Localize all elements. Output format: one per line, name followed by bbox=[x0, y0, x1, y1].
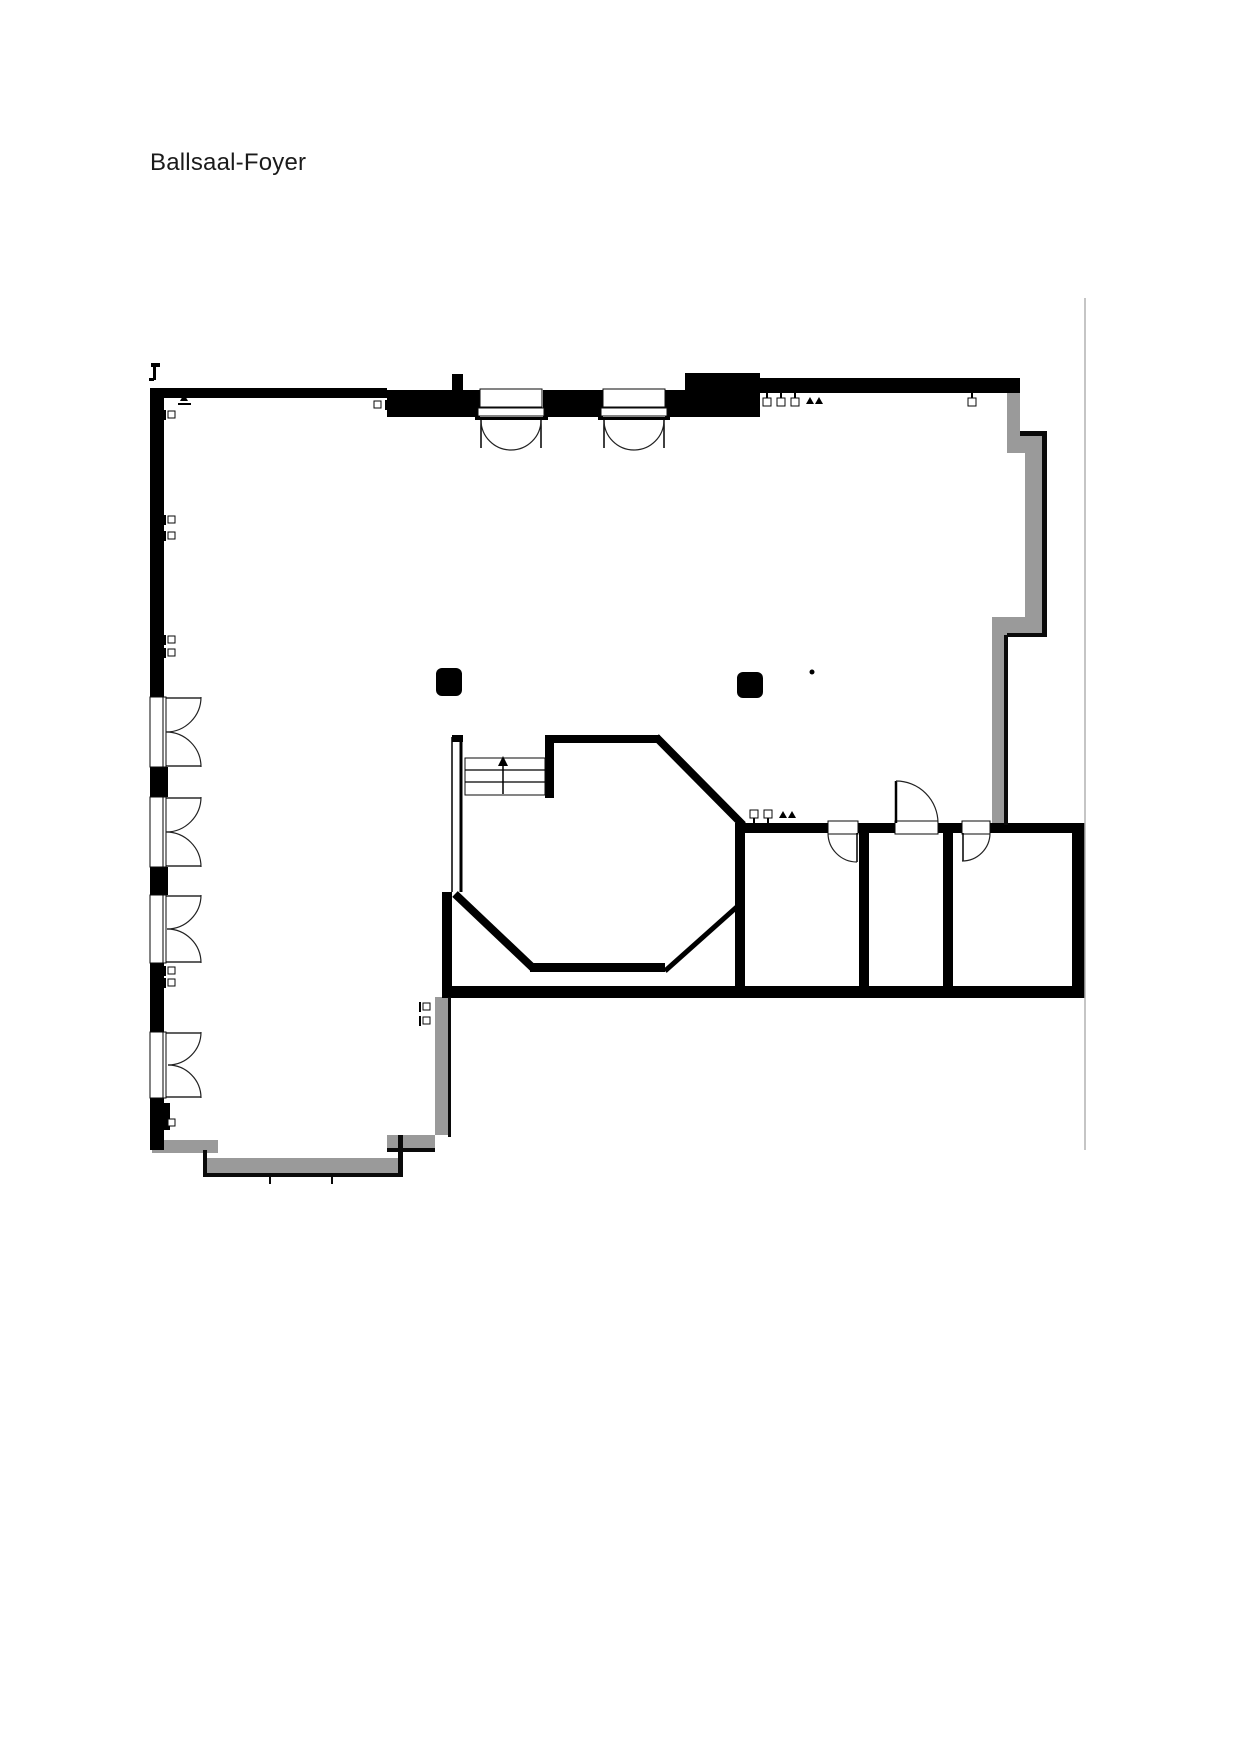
socket-symbol-stem bbox=[766, 393, 768, 398]
top-door-swing-arc bbox=[481, 420, 511, 450]
wall-symbol-square bbox=[168, 979, 175, 986]
block-right-wall bbox=[1072, 823, 1085, 998]
socket-symbol-stem bbox=[753, 818, 755, 823]
top-door-band-b bbox=[601, 408, 667, 416]
gray-edge-accent bbox=[398, 1135, 403, 1177]
floor-plan-drawing bbox=[0, 0, 1240, 1754]
wall-symbol-bar bbox=[164, 648, 166, 658]
gray-edge-accent bbox=[1042, 453, 1047, 635]
block-door-frame-b bbox=[895, 821, 938, 834]
gray-edge-accent bbox=[1042, 431, 1047, 453]
socket-triangle bbox=[806, 397, 814, 404]
survey-point-dot bbox=[810, 670, 815, 675]
wall-symbol-square bbox=[423, 1003, 430, 1010]
block-partition-2 bbox=[943, 833, 953, 986]
left-door-frame-2 bbox=[150, 797, 166, 867]
socket-triangle bbox=[788, 811, 796, 818]
left-wall-pier-2 bbox=[150, 867, 168, 895]
socket-symbol-stem bbox=[780, 393, 782, 398]
left-door-swing-arc bbox=[166, 697, 201, 732]
socket-symbol-stem bbox=[971, 393, 973, 398]
wall-symbol-bar bbox=[385, 400, 387, 410]
top-door-frame-a bbox=[480, 389, 542, 407]
socket-symbol-square bbox=[764, 810, 772, 818]
block-top-wall-1 bbox=[743, 823, 828, 833]
block-top-wall-2 bbox=[858, 823, 895, 833]
stage-diagonal-sw bbox=[455, 894, 533, 968]
socket-symbol-square bbox=[791, 398, 799, 406]
gray-bottom-wall-3 bbox=[205, 1158, 400, 1173]
socket-symbol-square bbox=[968, 398, 976, 406]
gray-bottom-wall-1 bbox=[435, 997, 450, 1135]
block-door-swing-arc-b bbox=[896, 781, 938, 823]
stage-west-wall bbox=[442, 892, 452, 986]
top-wall-block bbox=[685, 373, 760, 417]
wall-symbol-square bbox=[168, 532, 175, 539]
top-wall-c bbox=[665, 390, 685, 417]
stage-bottom-wall bbox=[530, 963, 665, 972]
gray-edge-accent bbox=[203, 1173, 403, 1177]
wall-symbol-square bbox=[168, 1119, 175, 1126]
left-door-frame-4 bbox=[150, 1032, 166, 1098]
wall-symbol-square bbox=[168, 967, 175, 974]
block-door-frame-a bbox=[828, 821, 858, 834]
wall-symbol-bar bbox=[164, 1118, 166, 1128]
left-door-frame-1 bbox=[150, 697, 166, 767]
top-door-frame-b bbox=[603, 389, 665, 407]
socket-symbol-square bbox=[750, 810, 758, 818]
left-door-swing-arc bbox=[168, 1065, 201, 1098]
gray-right-wall-4 bbox=[992, 617, 1047, 635]
wall-symbol-bar bbox=[419, 1002, 421, 1012]
door-lintel-a bbox=[475, 417, 548, 420]
gray-right-wall-1 bbox=[1007, 393, 1020, 433]
survey-tick bbox=[269, 1177, 271, 1184]
left-door-frame-3 bbox=[150, 895, 166, 963]
top-wall-a bbox=[387, 390, 480, 417]
stage-diagonal-se bbox=[665, 905, 739, 971]
socket-triangle bbox=[779, 811, 787, 818]
column-1 bbox=[436, 668, 462, 696]
wall-symbol-bar bbox=[164, 531, 166, 541]
wall-symbol-bar bbox=[164, 978, 166, 988]
top-wall-b bbox=[543, 390, 603, 417]
block-door-frame-c bbox=[962, 821, 990, 834]
socket-symbol-square bbox=[777, 398, 785, 406]
label-marker-bar bbox=[178, 403, 191, 405]
gray-edge-accent bbox=[448, 997, 451, 1137]
left-door-swing-arc bbox=[166, 832, 201, 867]
door-lintel-b bbox=[598, 417, 670, 420]
wall-symbol-square bbox=[423, 1017, 430, 1024]
socket-triangle bbox=[815, 397, 823, 404]
stage-diagonal-ne bbox=[656, 737, 743, 825]
block-top-wall-3 bbox=[938, 823, 962, 833]
wall-symbol-square bbox=[168, 516, 175, 523]
socket-symbol-stem bbox=[794, 393, 796, 398]
gray-edge-accent bbox=[1004, 635, 1008, 825]
top-door-swing-arc bbox=[511, 420, 541, 450]
top-wall-left bbox=[150, 388, 387, 398]
column-2 bbox=[737, 672, 763, 698]
top-door-swing-arc bbox=[604, 420, 634, 450]
main-bottom-wall bbox=[442, 986, 1085, 998]
wall-symbol-bar bbox=[164, 966, 166, 976]
left-door-swing-arc bbox=[167, 895, 201, 929]
wall-symbol-square bbox=[168, 636, 175, 643]
wall-symbol-square bbox=[374, 401, 381, 408]
block-door-swing-arc-c bbox=[962, 833, 990, 861]
stage-stub-wall bbox=[545, 735, 554, 798]
top-door-band-a bbox=[478, 408, 544, 416]
left-wall-pier-3 bbox=[150, 1103, 170, 1130]
left-wall-mid bbox=[150, 963, 164, 1032]
top-wall-stub bbox=[452, 374, 463, 390]
left-door-swing-arc bbox=[166, 732, 201, 767]
socket-symbol-square bbox=[763, 398, 771, 406]
gray-edge-accent bbox=[203, 1150, 207, 1177]
survey-tick bbox=[331, 1177, 333, 1184]
corner-marker-part bbox=[149, 378, 154, 381]
left-door-swing-arc bbox=[168, 1032, 201, 1065]
corner-marker-part bbox=[151, 363, 160, 367]
top-door-swing-arc bbox=[634, 420, 664, 450]
stage-top-wall bbox=[547, 735, 660, 743]
wall-symbol-bar bbox=[164, 635, 166, 645]
left-wall-pier-1 bbox=[150, 767, 168, 797]
wall-symbol-square bbox=[168, 411, 175, 418]
gray-edge-accent bbox=[387, 1148, 435, 1152]
gray-edge-accent bbox=[1007, 633, 1047, 637]
left-door-swing-arc bbox=[166, 797, 201, 832]
block-partition-1 bbox=[859, 833, 869, 986]
wall-symbol-bar bbox=[419, 1016, 421, 1026]
socket-symbol-stem bbox=[767, 818, 769, 823]
left-door-swing-arc bbox=[167, 929, 201, 963]
document-page: Ballsaal-Foyer bbox=[0, 0, 1240, 1754]
left-wall-upper bbox=[150, 388, 164, 697]
wall-symbol-square bbox=[168, 649, 175, 656]
block-door-swing-arc-a bbox=[828, 833, 857, 862]
wall-symbol-bar bbox=[164, 410, 166, 420]
wall-symbol-bar bbox=[164, 515, 166, 525]
top-wall-right bbox=[760, 378, 1020, 393]
